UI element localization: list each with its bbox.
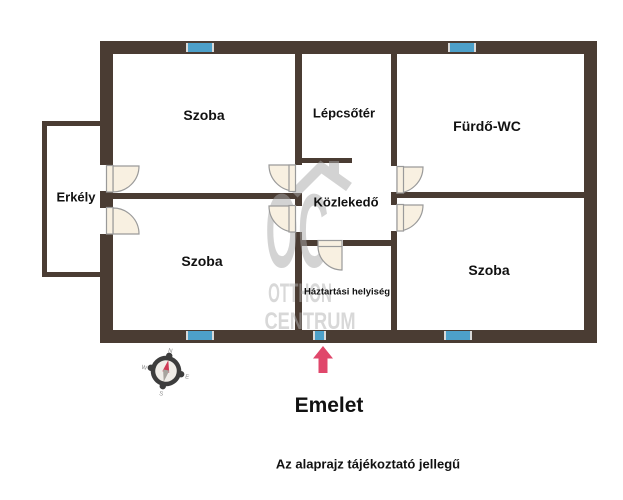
compass-label-n: N [167, 348, 172, 355]
watermark-monogram: OC [266, 172, 329, 289]
watermark-line2: CENTRUM [264, 308, 355, 335]
room-label-erkely: Erkély [56, 191, 95, 204]
disclaimer-text: Az alaprajz tájékoztató jellegű [276, 457, 460, 472]
door-leaf-balcony-lower [107, 208, 114, 235]
door-leaf-top-left-room [289, 165, 296, 192]
compass-label-s: S [158, 391, 163, 398]
room-label-szoba-top-left: Szoba [183, 108, 224, 122]
door-leaf-balcony-upper [107, 166, 114, 193]
door-arc-balcony-upper [113, 166, 139, 192]
door-leaf-bottom-left-room [289, 206, 296, 233]
entrance-arrow-icon [313, 346, 333, 373]
compass-label-w: W [141, 365, 148, 372]
floor-title: Emelet [295, 394, 364, 418]
door-leaf-utility-room [318, 241, 342, 247]
floor-plan: OC OTTHON CENTRUM [0, 0, 623, 500]
room-label-szoba-bottom-left: Szoba [181, 254, 222, 268]
door-leaf-bathroom [397, 167, 404, 194]
room-label-lepcsoter: Lépcsőtér [313, 107, 375, 120]
room-label-kozlekedo: Közlekedő [313, 196, 378, 209]
compass-icon: N E S W [136, 343, 194, 402]
door-leaf-bottom-right-room [397, 205, 404, 232]
door-arc-balcony-lower [113, 208, 139, 234]
room-label-furdo-wc: Fürdő-WC [453, 119, 521, 133]
compass-label-e: E [185, 374, 190, 381]
room-label-haztartasi: Háztartási helyiség [304, 287, 390, 297]
plan-overlay: OC OTTHON CENTRUM [0, 0, 623, 500]
room-label-szoba-bottom-right: Szoba [468, 263, 509, 277]
